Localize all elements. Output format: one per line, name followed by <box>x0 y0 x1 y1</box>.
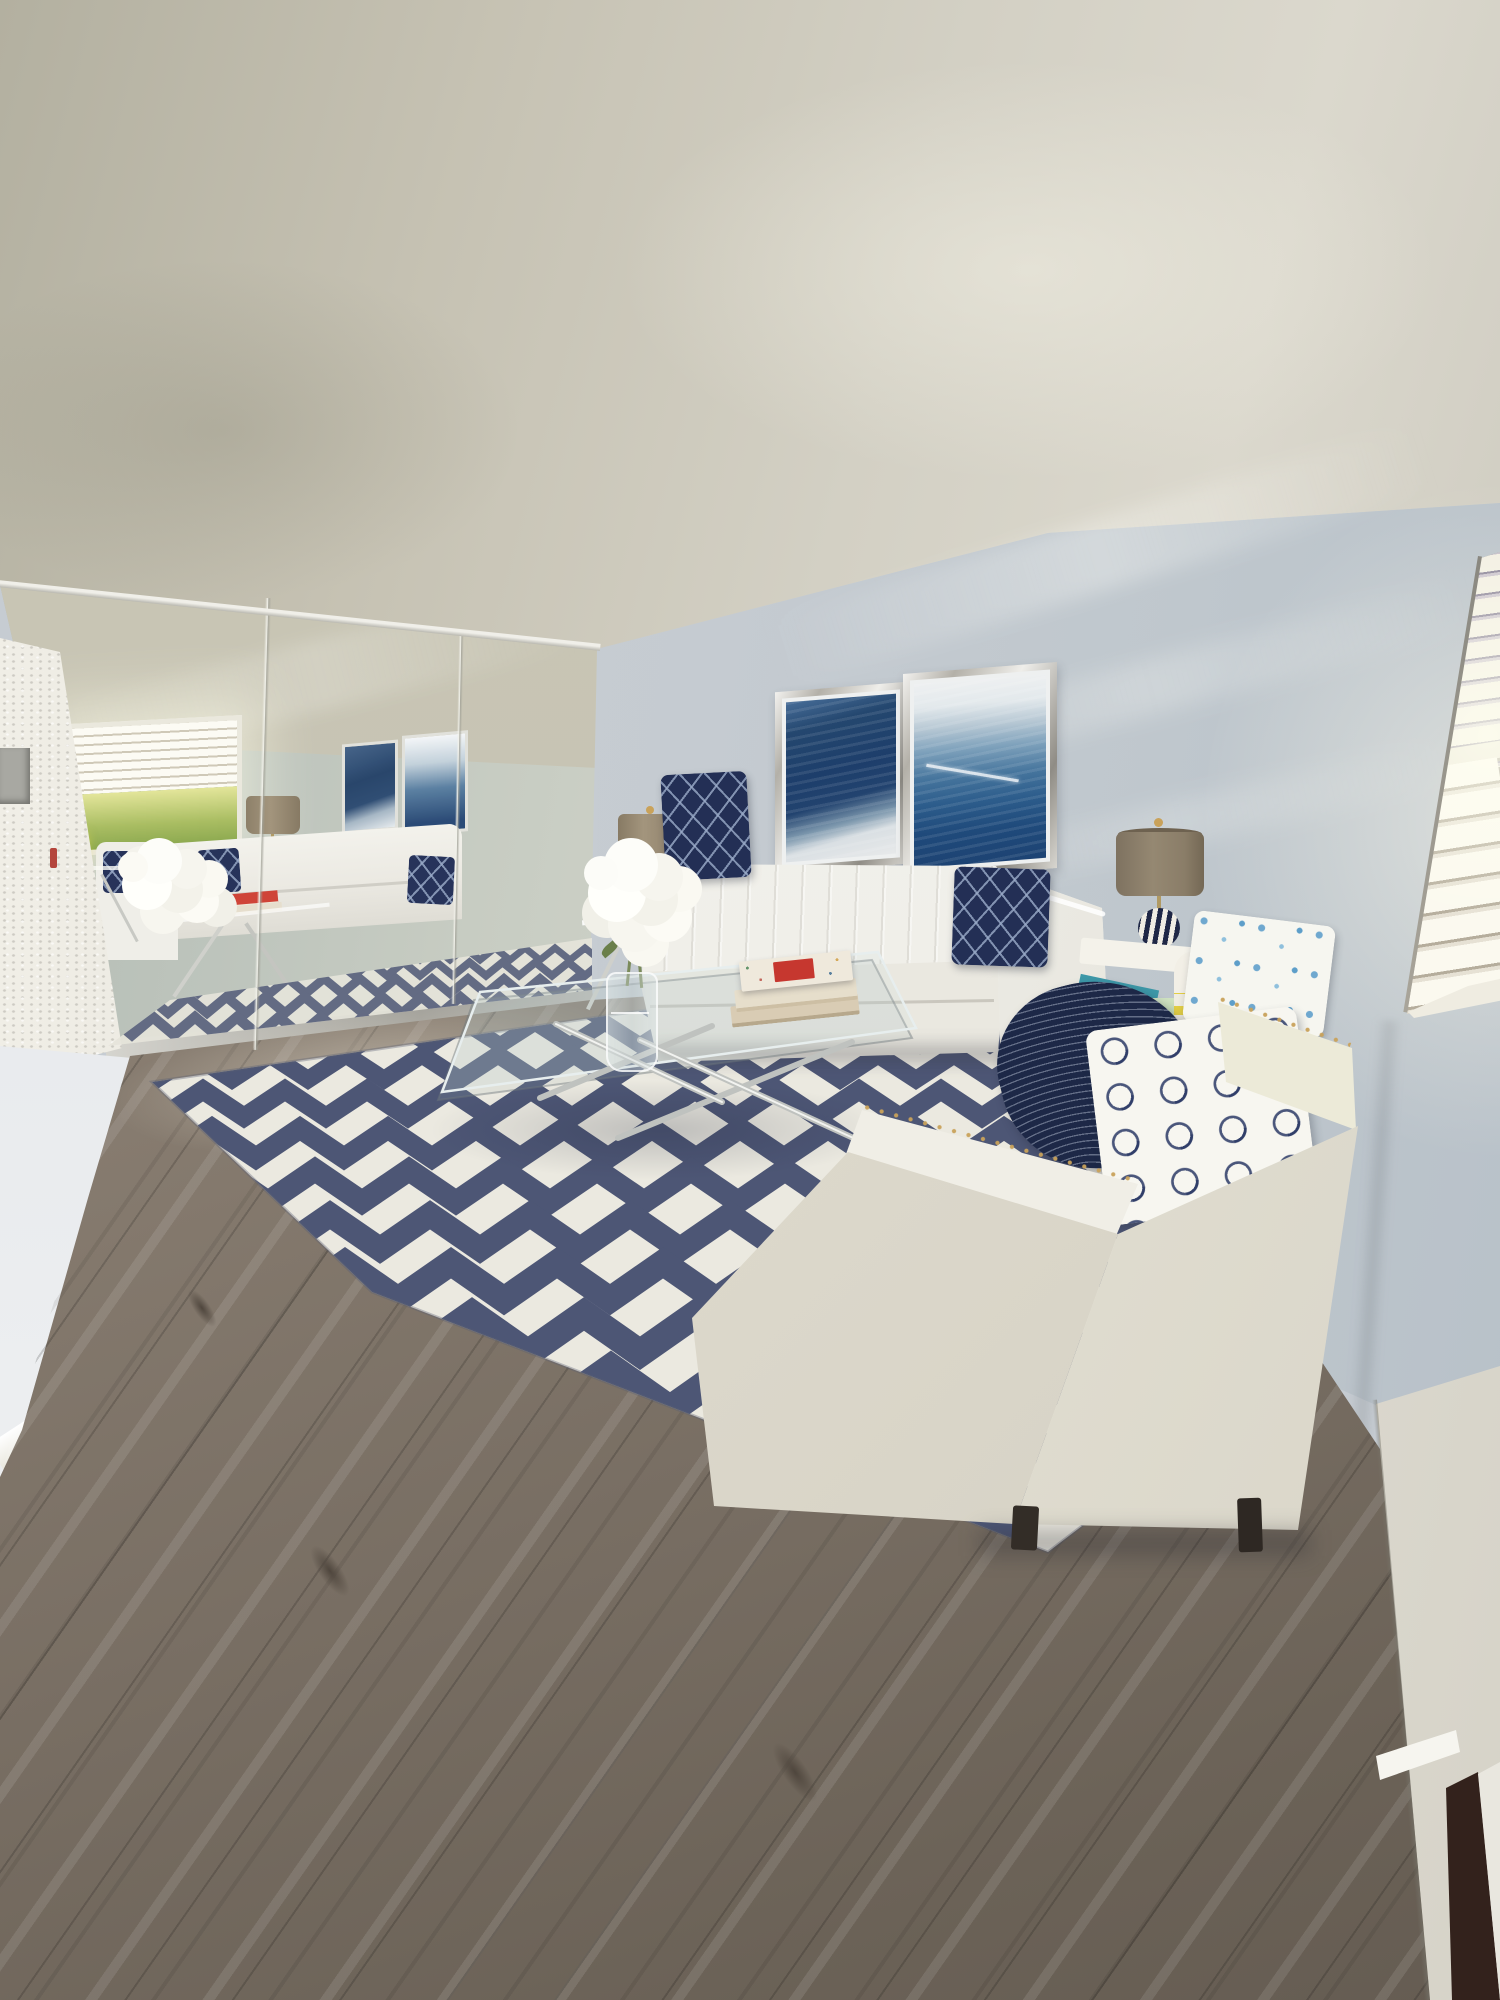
clear-glass-vase <box>606 972 658 1072</box>
living-room-photo <box>0 0 1500 2000</box>
armchair-foot <box>1011 1505 1039 1550</box>
vase-water-line <box>611 1012 649 1014</box>
book-cover-red-art <box>773 958 815 982</box>
armchair-foot <box>1237 1498 1263 1553</box>
white-hydrangea-bouquet <box>584 856 618 890</box>
